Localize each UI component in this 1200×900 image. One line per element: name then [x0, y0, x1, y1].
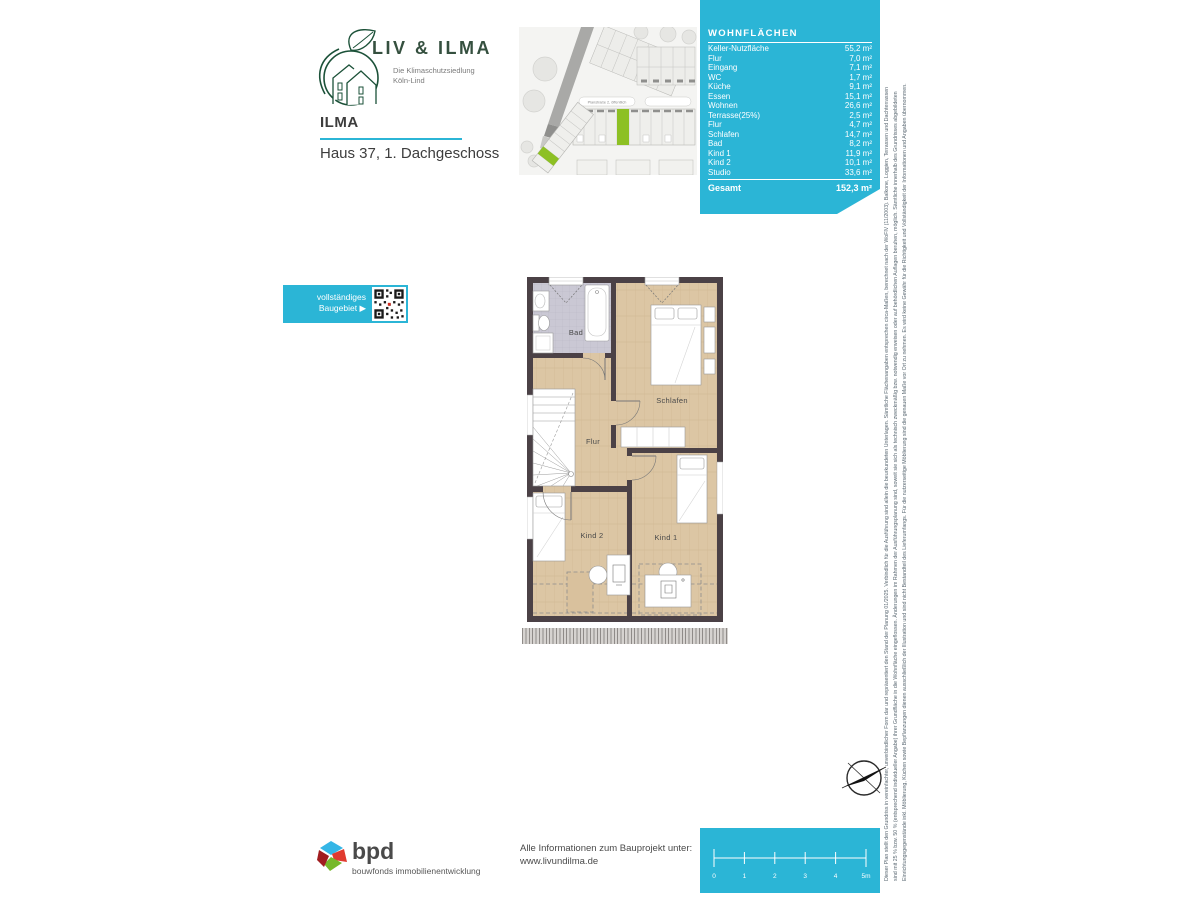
wohnflaechen-row: Wohnen 26,6 m² — [708, 101, 872, 111]
bpd-subtitle: bouwfonds immobilienentwicklung — [352, 866, 481, 876]
scale-tick-4: 4 — [834, 873, 838, 880]
room-label: Studio — [708, 168, 731, 178]
room-label: Essen — [708, 92, 730, 102]
wohnflaechen-row: Kind 1 11,9 m² — [708, 149, 872, 159]
wohnflaechen-panel: WOHNFLÄCHEN Keller-Nutzfläche 55,2 m² Fl… — [700, 0, 880, 214]
disclaimer-line2: sind mit 25 % bzw. 50 % (entsprechend in… — [892, 30, 901, 881]
scale-tick-2: 2 — [773, 873, 777, 880]
room-label: Flur — [708, 120, 722, 130]
room-label-bad: Bad — [569, 328, 583, 337]
room-label: Kind 2 — [708, 158, 731, 168]
room-label-kind2: Kind 2 — [580, 531, 603, 540]
info-line1: Alle Informationen zum Bauprojekt unter: — [520, 842, 692, 855]
wohnflaechen-row: Terrasse(25%) 2,5 m² — [708, 111, 872, 121]
siteplan-bottom-houses — [577, 160, 693, 175]
wohnflaechen-row: Studio 33,6 m² — [708, 168, 872, 178]
disclaimer-line3: Einrichtungsgegenstände inkl. Möblierung… — [901, 30, 910, 881]
scale-tick-3: 3 — [803, 873, 807, 880]
page-subtitle: Haus 37, 1. Dachgeschoss — [320, 145, 499, 162]
wohnflaechen-title: WOHNFLÄCHEN — [708, 28, 872, 43]
siteplan-map: Planstraße 2, öffentlich — [519, 27, 697, 175]
scalebar: 0 1 2 3 4 5m — [700, 828, 880, 893]
qr-label-line2: Baugebiet ▶ — [317, 303, 366, 314]
room-area-value: 2,5 m² — [849, 111, 872, 121]
wohnflaechen-total-row: Gesamt 152,3 m² — [708, 179, 872, 193]
room-area-value: 10,1 m² — [845, 158, 872, 168]
website-link[interactable]: www.livundilma.de — [520, 855, 692, 868]
room-label-kind1: Kind 1 — [654, 533, 677, 542]
room-label-schlafen: Schlafen — [656, 396, 688, 405]
room-area-value: 9,1 m² — [849, 82, 872, 92]
wohnflaechen-table: Keller-Nutzfläche 55,2 m² Flur 7,0 m² Ei… — [708, 44, 872, 177]
room-label: Kind 1 — [708, 149, 731, 159]
siteplan-street-label: Planstraße 2, öffentlich — [588, 100, 627, 104]
room-area-value: 7,0 m² — [849, 54, 872, 64]
nightstand — [704, 307, 715, 322]
scalebar-box: 0 1 2 3 4 5m — [700, 828, 880, 893]
room-area-value: 14,7 m² — [845, 130, 872, 140]
room-area-value: 7,1 m² — [849, 63, 872, 73]
toilet — [533, 315, 539, 331]
flyer-page: LIV & ILMA Die Klimaschutzsiedlung Köln-… — [0, 0, 1200, 900]
roof-eave-hatch — [522, 628, 728, 644]
wohnflaechen-row: Bad 8,2 m² — [708, 139, 872, 149]
project-info: Alle Informationen zum Bauprojekt unter:… — [520, 842, 692, 868]
wohnflaechen-row: Küche 9,1 m² — [708, 82, 872, 92]
room-label: WC — [708, 73, 721, 83]
wardrobe — [704, 327, 715, 353]
bpd-logo-icon — [316, 840, 348, 872]
floorplan-drawing: Bad Schlafen Flur Kind 2 Kind 1 — [527, 277, 723, 622]
scale-tick-1: 1 — [743, 873, 747, 880]
room-area-value: 8,2 m² — [849, 139, 872, 149]
room-label: Bad — [708, 139, 722, 149]
staircase — [533, 389, 575, 486]
wohnflaechen-row: Keller-Nutzfläche 55,2 m² — [708, 44, 872, 54]
room-label: Küche — [708, 82, 731, 92]
highlighted-house-37 — [617, 109, 629, 145]
north-compass-icon — [836, 750, 892, 806]
wohnflaechen-row: Eingang 7,1 m² — [708, 63, 872, 73]
room-label: Keller-Nutzfläche — [708, 44, 769, 54]
qr-code-icon — [372, 287, 406, 321]
wohnflaechen-row: Essen 15,1 m² — [708, 92, 872, 102]
qr-box-label: vollständiges Baugebiet ▶ — [317, 292, 366, 314]
wohnflaechen-row: WC 1,7 m² — [708, 73, 872, 83]
qr-code — [372, 287, 406, 321]
room-area-value: 26,6 m² — [845, 101, 872, 111]
wohnflaechen-row: Kind 2 10,1 m² — [708, 158, 872, 168]
room-label: Eingang — [708, 63, 737, 73]
room-area-value: 4,7 m² — [849, 120, 872, 130]
qr-baugebiet-box[interactable]: vollständiges Baugebiet ▶ — [283, 285, 408, 323]
room-area-value: 15,1 m² — [845, 92, 872, 102]
nightstand — [704, 359, 715, 374]
room-area-value: 11,9 m² — [845, 149, 872, 159]
room-label-flur: Flur — [586, 437, 600, 446]
title-rule — [320, 138, 462, 140]
brand-tagline-line1: Die Klimaschutzsiedlung — [393, 66, 475, 76]
qr-label-line1: vollständiges — [317, 292, 366, 303]
room-area-value: 55,2 m² — [845, 44, 872, 54]
chair — [589, 566, 607, 584]
total-value: 152,3 m² — [836, 183, 872, 193]
brand-tagline-line2: Köln-Lind — [393, 76, 475, 86]
brand-name: LIV & ILMA — [372, 38, 492, 59]
wohnflaechen-row: Flur 7,0 m² — [708, 54, 872, 64]
scale-tick-5: 5m — [861, 873, 870, 880]
room-label: Flur — [708, 54, 722, 64]
room-area-value: 1,7 m² — [849, 73, 872, 83]
wohnflaechen-row: Flur 4,7 m² — [708, 120, 872, 130]
brand-tagline: Die Klimaschutzsiedlung Köln-Lind — [393, 66, 475, 86]
page-title: ILMA — [320, 114, 359, 131]
room-label: Wohnen — [708, 101, 738, 111]
room-area-value: 33,6 m² — [845, 168, 872, 178]
scale-tick-0: 0 — [712, 873, 716, 880]
wohnflaechen-row: Schlafen 14,7 m² — [708, 130, 872, 140]
bpd-wordmark: bpd — [352, 838, 394, 865]
room-label: Terrasse(25%) — [708, 111, 760, 121]
room-label: Schlafen — [708, 130, 739, 140]
total-label: Gesamt — [708, 183, 741, 193]
siteplan-right-block — [637, 47, 695, 85]
